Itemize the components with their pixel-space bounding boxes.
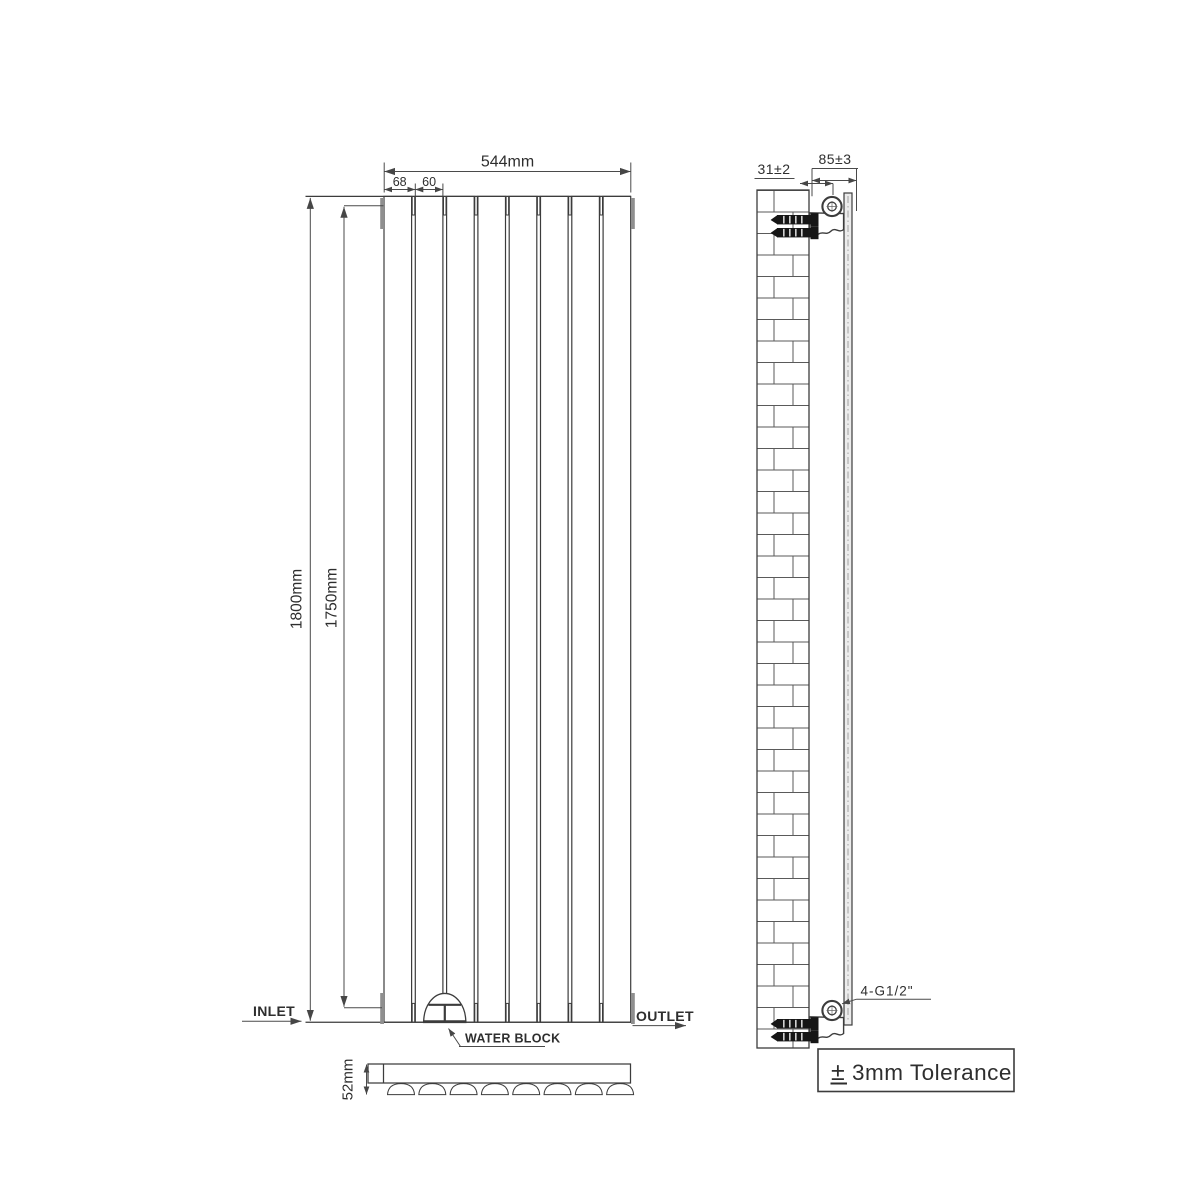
panel-height-label: 1750mm xyxy=(324,568,341,628)
radiator-panel xyxy=(572,196,600,1022)
mount-tab-icon xyxy=(631,993,635,1024)
radiator-panel xyxy=(509,196,537,1022)
radiator-panel xyxy=(447,196,475,1022)
panel-pitch-label: 68 xyxy=(393,175,407,189)
inlet-annotation: INLET xyxy=(242,1003,302,1021)
thread-callout: 4-G1/2" xyxy=(842,984,931,1004)
tolerance-note: ± 3mm Tolerance xyxy=(818,1049,1014,1092)
side-view: 85±3 31±2 4-G1/2" ± 3mm Tolerance xyxy=(755,151,1015,1092)
water-block-label: WATER BLOCK xyxy=(465,1032,560,1046)
wall-section xyxy=(757,190,809,1048)
radiator-panels xyxy=(384,196,631,1022)
tolerance-sign: ± xyxy=(831,1058,845,1086)
mount-tab-icon xyxy=(380,993,384,1024)
top-view-panel-bumps xyxy=(388,1084,634,1095)
overall-width-label: 544mm xyxy=(481,154,534,171)
tolerance-label: 3mm Tolerance xyxy=(852,1060,1012,1085)
radiator-panel xyxy=(541,196,569,1022)
dimension-panel-pitch: 68 60 xyxy=(384,175,443,196)
top-view: 52mm xyxy=(340,1059,634,1101)
dimension-overall-height: 1800mm xyxy=(289,198,311,1021)
drawing-svg: 544mm 68 60 1800mm 1750mm INLET xyxy=(0,0,1200,1200)
dimension-depth: 52mm xyxy=(340,1059,367,1101)
mount-tab-icon xyxy=(380,198,384,229)
radiator-panel xyxy=(384,196,412,1022)
radiator-panel xyxy=(478,196,506,1022)
mount-tab-icon xyxy=(631,198,635,229)
wall-gap-label: 31±2 xyxy=(757,161,790,177)
inlet-label: INLET xyxy=(253,1003,295,1019)
thread-label: 4-G1/2" xyxy=(861,984,914,999)
top-view-body xyxy=(368,1064,631,1083)
outlet-annotation: OUTLET xyxy=(633,1008,694,1026)
outlet-label: OUTLET xyxy=(636,1008,694,1024)
depth-label: 52mm xyxy=(340,1059,357,1101)
radiator-technical-drawing: 544mm 68 60 1800mm 1750mm INLET xyxy=(0,0,1200,1200)
water-block-callout: WATER BLOCK xyxy=(449,1029,561,1047)
radiator-panel xyxy=(415,196,443,1022)
wall-to-front-label: 85±3 xyxy=(818,151,851,167)
dimension-panel-height: 1750mm xyxy=(324,206,384,1008)
overall-height-label: 1800mm xyxy=(289,569,306,629)
panel-width-label: 60 xyxy=(422,175,436,189)
radiator-panel xyxy=(603,196,631,1022)
front-view: 544mm 68 60 1800mm 1750mm INLET xyxy=(242,154,694,1047)
